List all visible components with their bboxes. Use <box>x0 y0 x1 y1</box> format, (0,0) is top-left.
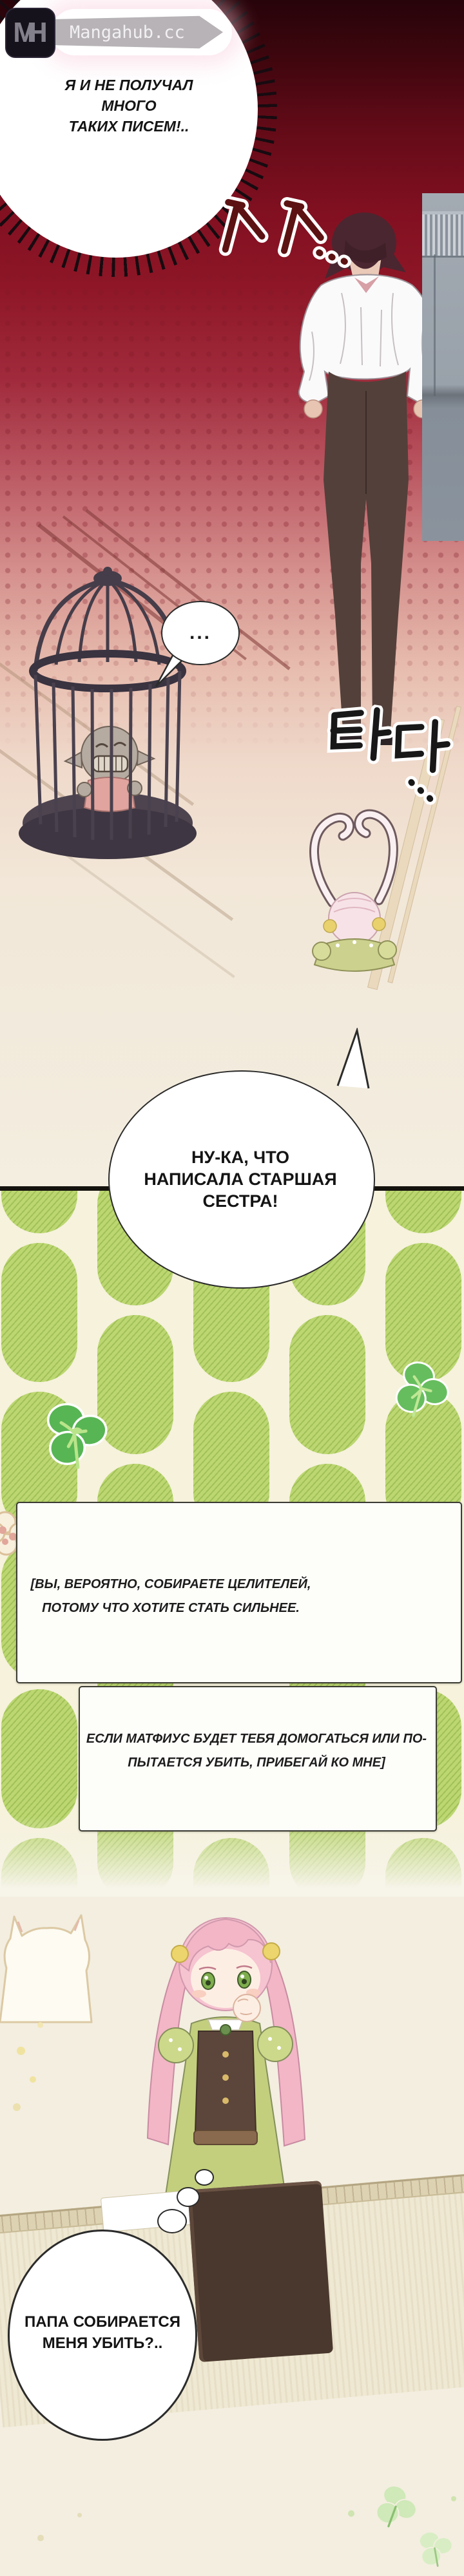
dot-decoration <box>37 2022 43 2028</box>
uniform-seam <box>434 254 436 396</box>
burst-line-2: ТАКИХ ПИСЕМ!.. <box>69 118 189 135</box>
dot-decoration <box>13 2103 21 2111</box>
burst-bubble-text: Я И НЕ ПОЛУЧАЛ МНОГО ТАКИХ ПИСЕМ!.. <box>37 75 220 137</box>
thought-line-1: ПАПА СОБИРАЕТСЯ <box>24 2313 180 2331</box>
dot-decoration <box>348 2510 354 2517</box>
pattern-capsule <box>1 1191 77 1233</box>
thought-line-2: МЕНЯ УБИТЬ?.. <box>43 2334 163 2352</box>
pattern-capsule <box>385 1191 461 1233</box>
ellipsis-bubble: ... <box>161 601 240 665</box>
letter2-line-2: ПЫТАЕТСЯ УБИТЬ, ПРИБЕГАЙ КО МНЕ] <box>128 1756 385 1770</box>
letter2-line-1: ЕСЛИ МАТФИУС БУДЕТ ТЕБЯ ДОМОГАТЬСЯ ИЛИ П… <box>86 1732 427 1746</box>
site-logo-text: Mangahub.cc <box>54 23 185 43</box>
dot-decoration <box>37 2535 44 2541</box>
girl-figure <box>132 1861 319 2222</box>
guard-figure <box>422 193 464 541</box>
dot-decoration <box>30 2076 36 2083</box>
sister-line-3: СЕСТРА! <box>203 1191 278 1211</box>
thought-chain-bubble <box>157 2209 187 2233</box>
sister-line-2: НАПИСАЛА СТАРШАЯ <box>144 1170 336 1189</box>
dot-decoration <box>17 2047 25 2055</box>
pattern-capsule <box>1 1243 77 1382</box>
sister-bubble-text: НУ-КА, ЧТО НАПИСАЛА СТАРШАЯ СЕСТРА! <box>140 1146 340 1212</box>
comic-page: Я И НЕ ПОЛУЧАЛ МНОГО ТАКИХ ПИСЕМ!.. MH M… <box>0 0 464 2576</box>
thought-bubble-text: ПАПА СОБИРАЕТСЯ МЕНЯ УБИТЬ?.. <box>24 2311 180 2354</box>
sister-bubble-tail <box>334 1028 372 1090</box>
ledger-book <box>188 2181 333 2362</box>
thought-chain-bubble <box>177 2187 200 2207</box>
ellipsis-text: ... <box>189 622 211 644</box>
pattern-capsule <box>1 1689 77 1828</box>
clover-decoration <box>39 1394 116 1476</box>
letter1-line-1: [ВЫ, ВЕРОЯТНО, СОБИРАЕТЕ ЦЕЛИТЕЛЕЙ, <box>31 1577 311 1591</box>
epaulette-fringe <box>422 211 464 258</box>
site-logo-badge: MH <box>5 8 55 58</box>
dot-decoration <box>451 2496 456 2501</box>
site-logo-initials: MH <box>13 17 47 49</box>
letter-box-1-text: [ВЫ, ВЕРОЯТНО, СОБИРАЕТЕ ЦЕЛИТЕЛЕЙ, ПОТО… <box>23 1573 319 1620</box>
site-logo-banner: Mangahub.cc <box>54 14 223 50</box>
running-girl <box>271 792 438 972</box>
clover-decoration <box>414 2525 459 2573</box>
letter-box-2-text: ЕСЛИ МАТФИУС БУДЕТ ТЕБЯ ДОМОГАТЬСЯ ИЛИ П… <box>85 1727 428 1775</box>
burst-line-1: Я И НЕ ПОЛУЧАЛ МНОГО <box>65 77 193 114</box>
cat-doodle <box>0 1899 98 2027</box>
pattern-capsule <box>289 1315 365 1454</box>
thought-chain-bubble <box>195 2169 214 2186</box>
birdcage <box>16 567 197 863</box>
thought-bubble: ПАПА СОБИРАЕТСЯ МЕНЯ УБИТЬ?.. <box>8 2230 197 2441</box>
clover-decoration <box>369 2479 425 2537</box>
letter1-line-2: ПОТОМУ ЧТО ХОТИТЕ СТАТЬ СИЛЬНЕЕ. <box>42 1601 300 1615</box>
dot-decoration <box>77 2513 82 2517</box>
sister-line-1: НУ-КА, ЧТО <box>191 1148 289 1167</box>
